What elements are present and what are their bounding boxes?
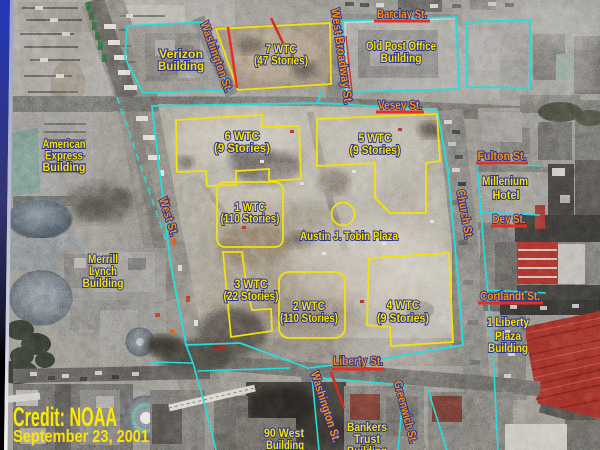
svg-text:(47 Stories): (47 Stories) <box>254 56 308 68</box>
svg-text:Trust: Trust <box>354 434 380 446</box>
svg-text:(9 Stories): (9 Stories) <box>377 313 429 325</box>
svg-text:4 WTC: 4 WTC <box>387 300 420 312</box>
svg-text:(110 Stories): (110 Stories) <box>221 214 280 226</box>
svg-text:1 Liberty: 1 Liberty <box>487 317 530 329</box>
svg-text:Plaza: Plaza <box>495 331 522 343</box>
svg-text:Building: Building <box>266 440 304 450</box>
svg-text:(110 Stories): (110 Stories) <box>280 313 338 325</box>
svg-text:Liberty St.: Liberty St. <box>333 354 383 368</box>
svg-text:Building: Building <box>158 61 204 73</box>
svg-text:Vesey St.: Vesey St. <box>378 98 422 112</box>
svg-text:(22 Stories): (22 Stories) <box>224 291 279 303</box>
svg-text:(9 Stories): (9 Stories) <box>214 143 270 155</box>
svg-text:Millenium: Millenium <box>482 176 528 188</box>
svg-text:Building: Building <box>381 53 422 65</box>
svg-text:Bankers: Bankers <box>347 422 387 434</box>
svg-text:Verizon: Verizon <box>159 49 203 61</box>
svg-text:1 WTC: 1 WTC <box>235 202 266 214</box>
svg-text:3 WTC: 3 WTC <box>235 279 268 291</box>
svg-text:Fulton St.: Fulton St. <box>478 149 527 163</box>
svg-text:Building: Building <box>347 446 387 450</box>
svg-text:September 23, 2001: September 23, 2001 <box>13 426 149 446</box>
svg-text:Building: Building <box>83 278 124 290</box>
svg-text:Dey St.: Dey St. <box>493 212 526 226</box>
svg-text:Merrill: Merrill <box>88 254 118 266</box>
svg-text:7 WTC: 7 WTC <box>266 44 297 56</box>
svg-text:Express: Express <box>45 151 83 163</box>
svg-text:2 WTC: 2 WTC <box>293 301 325 313</box>
svg-text:Austin J. Tobin Plaza: Austin J. Tobin Plaza <box>300 231 399 243</box>
svg-text:Cortlandt St.: Cortlandt St. <box>480 289 540 303</box>
svg-text:90 West: 90 West <box>264 428 304 440</box>
svg-text:American: American <box>43 139 86 151</box>
svg-text:Hotel: Hotel <box>493 190 520 202</box>
svg-text:Building: Building <box>488 343 528 355</box>
svg-text:Building: Building <box>43 162 86 174</box>
svg-text:5 WTC: 5 WTC <box>359 133 392 145</box>
svg-text:Lynch: Lynch <box>89 266 117 278</box>
svg-text:Barclay St.: Barclay St. <box>377 7 427 21</box>
svg-text:6 WTC: 6 WTC <box>225 131 260 143</box>
svg-text:Old Post Office: Old Post Office <box>366 41 436 53</box>
svg-text:(9 Stories): (9 Stories) <box>350 145 401 157</box>
